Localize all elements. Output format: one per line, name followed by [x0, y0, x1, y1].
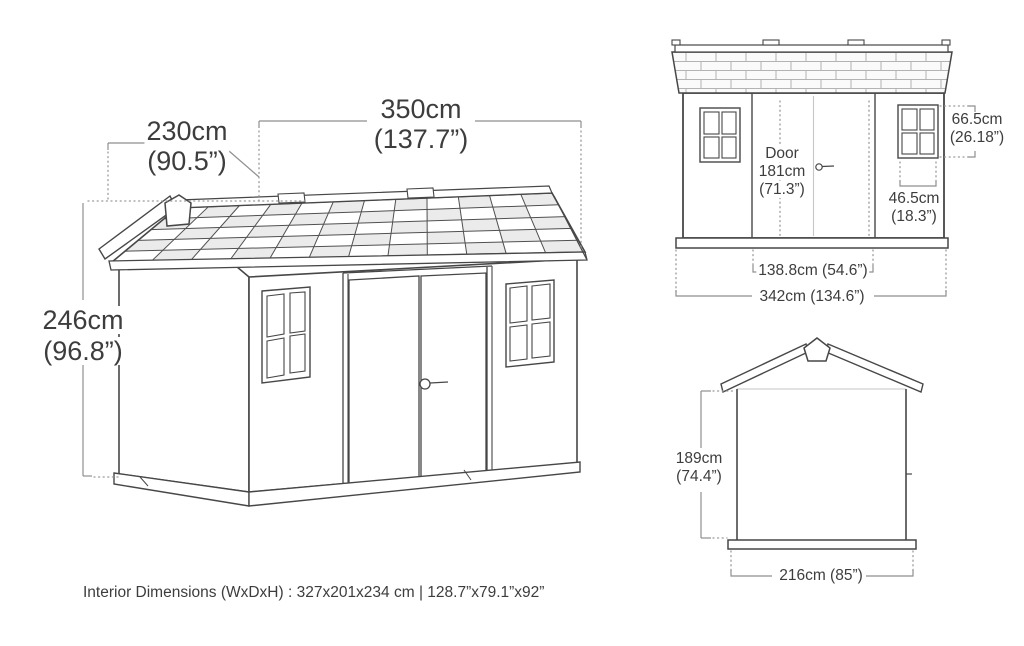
dim-window-height-cm-label: 66.5cm	[950, 112, 1005, 128]
dim-overall-width-label: 342cm (134.6”)	[757, 289, 866, 305]
dim-window-width-in-label: (18.3”)	[889, 209, 939, 225]
front-left-window	[700, 108, 740, 162]
side-view-wall	[737, 389, 906, 540]
ridge-vent-tab	[763, 40, 779, 45]
door-handle-icon	[420, 379, 430, 389]
dim-wall-height-cm-label: 189cm	[674, 451, 725, 467]
ridge-vent-tab	[407, 188, 434, 198]
dim-width-cm-label: 350cm	[378, 95, 463, 123]
side-roof-peak-cap	[804, 338, 830, 361]
front-view-roof	[672, 52, 952, 93]
front-right-window	[898, 105, 938, 158]
perspective-left-window	[262, 287, 310, 383]
side-roof-beam-left	[721, 344, 808, 392]
interior-dimensions-note: Interior Dimensions (WxDxH) : 327x201x23…	[83, 584, 544, 602]
dim-side-width-label: 216cm (85”)	[777, 568, 865, 584]
front-view-plinth	[676, 238, 948, 248]
diagram-linework	[0, 0, 1024, 646]
perspective-door	[343, 266, 492, 496]
side-roof-beam-right	[826, 344, 923, 392]
dim-height-cm-label: 246cm	[40, 306, 125, 334]
dim-door-span-label: 138.8cm (54.6”)	[756, 263, 869, 279]
side-view-plinth	[728, 540, 916, 549]
perspective-right-window	[506, 280, 554, 367]
ridge-vent-tab	[942, 40, 950, 45]
ridge-vent-tab	[848, 40, 864, 45]
dim-window-height-in-label: (26.18”)	[948, 130, 1006, 146]
ridge-vent-tab	[672, 40, 680, 45]
door-label-line1: Door	[763, 146, 801, 162]
perspective-roof	[99, 186, 587, 270]
shed-dimensions-diagram: 230cm (90.5”) 350cm (137.7”) 246cm (96.8…	[0, 0, 1024, 646]
side-view	[701, 338, 923, 576]
dim-height-in-label: (96.8”)	[41, 337, 125, 365]
dim-wall-height-in-label: (74.4”)	[674, 469, 724, 485]
door-label-line3: (71.3”)	[757, 182, 807, 198]
front-view	[672, 40, 975, 296]
dim-depth-cm-label: 230cm	[144, 117, 229, 145]
dim-depth-in-label: (90.5”)	[145, 147, 229, 175]
front-view-roof-ridge-strip	[675, 45, 948, 52]
dim-window-width-cm-label: 46.5cm	[887, 191, 942, 207]
dim-width-in-label: (137.7”)	[372, 125, 471, 153]
door-label-line2: 181cm	[757, 164, 808, 180]
perspective-view	[83, 121, 587, 506]
